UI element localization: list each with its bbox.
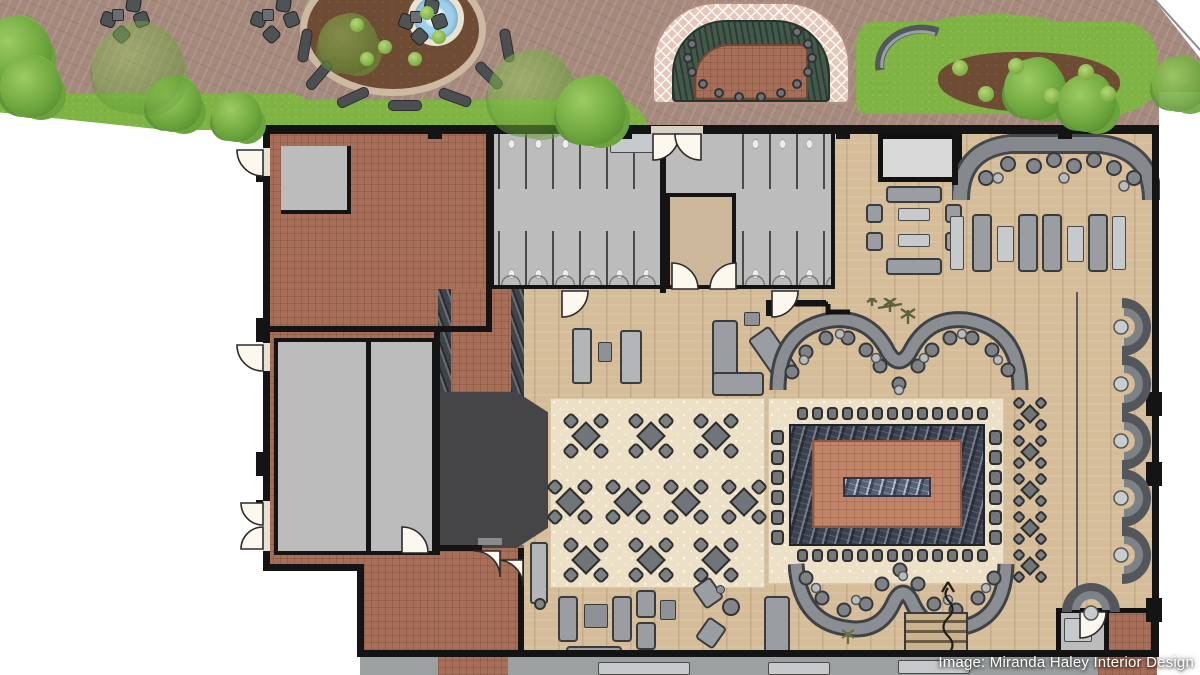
island-stool bbox=[812, 549, 823, 562]
island-stool bbox=[797, 549, 808, 562]
island-stool bbox=[932, 407, 943, 420]
island-stool bbox=[771, 510, 784, 525]
island-stool bbox=[989, 430, 1002, 445]
shrub bbox=[1078, 64, 1094, 80]
island-stool bbox=[917, 407, 928, 420]
patio-table bbox=[262, 9, 274, 21]
water-feature-stool bbox=[683, 53, 693, 63]
island-stool bbox=[989, 450, 1002, 465]
plaza-bench bbox=[388, 100, 422, 111]
tree bbox=[1058, 74, 1116, 132]
island-stool bbox=[917, 549, 928, 562]
booth-seat bbox=[1092, 469, 1162, 527]
booth-seat bbox=[1092, 412, 1162, 470]
island-stool bbox=[827, 549, 838, 562]
island-stool bbox=[989, 510, 1002, 525]
island-stool bbox=[812, 407, 823, 420]
water-feature-stool bbox=[714, 88, 724, 98]
island-stool bbox=[977, 407, 988, 420]
island-stool bbox=[771, 530, 784, 545]
floor-plan-canvas: Image: Miranda Haley Interior Design bbox=[0, 0, 1200, 675]
tree bbox=[0, 56, 62, 118]
island-stool bbox=[887, 549, 898, 562]
island-stool bbox=[842, 407, 853, 420]
island-stool bbox=[872, 549, 883, 562]
island-stool bbox=[797, 407, 808, 420]
tree bbox=[1152, 56, 1200, 112]
shrub bbox=[432, 30, 446, 44]
tree bbox=[212, 92, 262, 142]
island-stool bbox=[962, 549, 973, 562]
booth-seat bbox=[1092, 298, 1162, 356]
island-stool bbox=[857, 549, 868, 562]
shrub bbox=[420, 6, 434, 20]
island-stool bbox=[947, 407, 958, 420]
island-stool bbox=[977, 549, 988, 562]
island-stool bbox=[962, 407, 973, 420]
tree bbox=[556, 76, 626, 146]
shrub bbox=[408, 52, 422, 66]
patio-table bbox=[112, 9, 124, 21]
island-stool bbox=[857, 407, 868, 420]
island-stool bbox=[989, 470, 1002, 485]
island-stool bbox=[902, 549, 913, 562]
shrub bbox=[360, 52, 374, 66]
island-stool bbox=[887, 407, 898, 420]
water-feature-stool bbox=[698, 79, 708, 89]
shrub bbox=[1044, 88, 1060, 104]
island-stool bbox=[989, 490, 1002, 505]
shrub bbox=[1100, 86, 1116, 102]
island-stool bbox=[827, 407, 838, 420]
island-stool bbox=[771, 450, 784, 465]
island-stool bbox=[842, 549, 853, 562]
island-stool bbox=[771, 470, 784, 485]
shrub bbox=[978, 86, 994, 102]
island-stool bbox=[989, 530, 1002, 545]
island-stool bbox=[872, 407, 883, 420]
shrub bbox=[378, 40, 392, 54]
booth-seat bbox=[1062, 572, 1120, 642]
water-feature-stool bbox=[803, 67, 813, 77]
water-feature-stool bbox=[687, 39, 697, 49]
shrub bbox=[952, 60, 968, 76]
water-feature-stool bbox=[687, 67, 697, 77]
water-feature-stool bbox=[807, 53, 817, 63]
shrub bbox=[350, 18, 364, 32]
island-stool bbox=[771, 430, 784, 445]
island-stool bbox=[947, 549, 958, 562]
water-feature-stool bbox=[776, 88, 786, 98]
tree bbox=[92, 22, 184, 114]
shrub bbox=[1008, 58, 1024, 74]
island-stool bbox=[932, 549, 943, 562]
booth-seat bbox=[1092, 355, 1162, 413]
island-stool bbox=[902, 407, 913, 420]
island-stool bbox=[771, 490, 784, 505]
image-credit-caption: Image: Miranda Haley Interior Design bbox=[938, 654, 1194, 671]
